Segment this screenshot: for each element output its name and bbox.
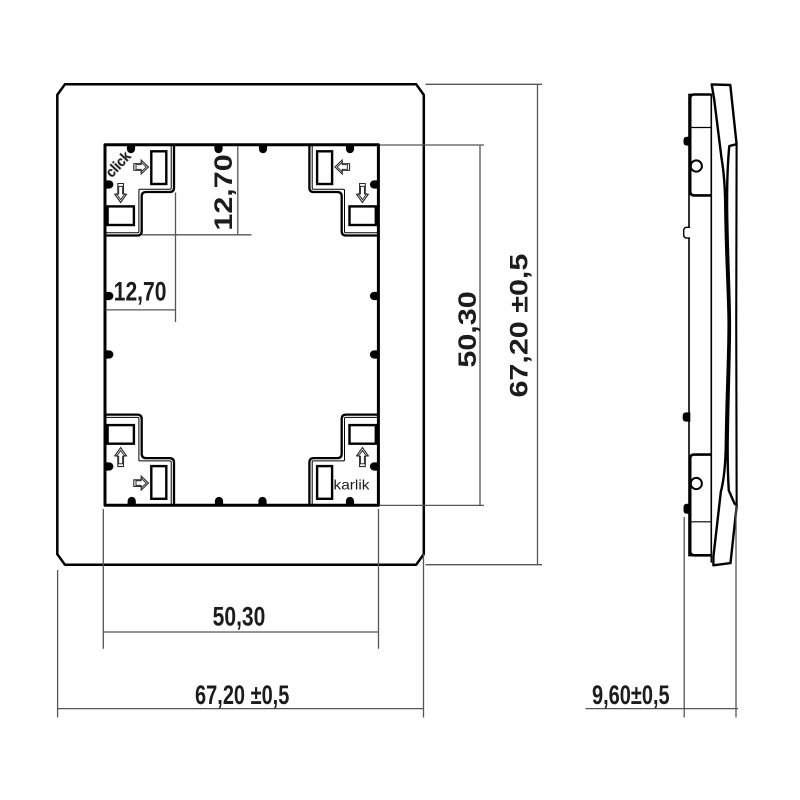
svg-text:50,30: 50,30 <box>454 291 482 367</box>
svg-text:67,20 ±0,5: 67,20 ±0,5 <box>505 254 533 398</box>
svg-text:12,70: 12,70 <box>114 277 167 307</box>
svg-text:9,60±0,5: 9,60±0,5 <box>592 680 670 711</box>
svg-text:67,20 ±0,5: 67,20 ±0,5 <box>195 680 289 711</box>
svg-text:karlik: karlik <box>334 478 371 493</box>
svg-text:50,30: 50,30 <box>213 602 266 632</box>
svg-text:12,70: 12,70 <box>210 154 238 230</box>
